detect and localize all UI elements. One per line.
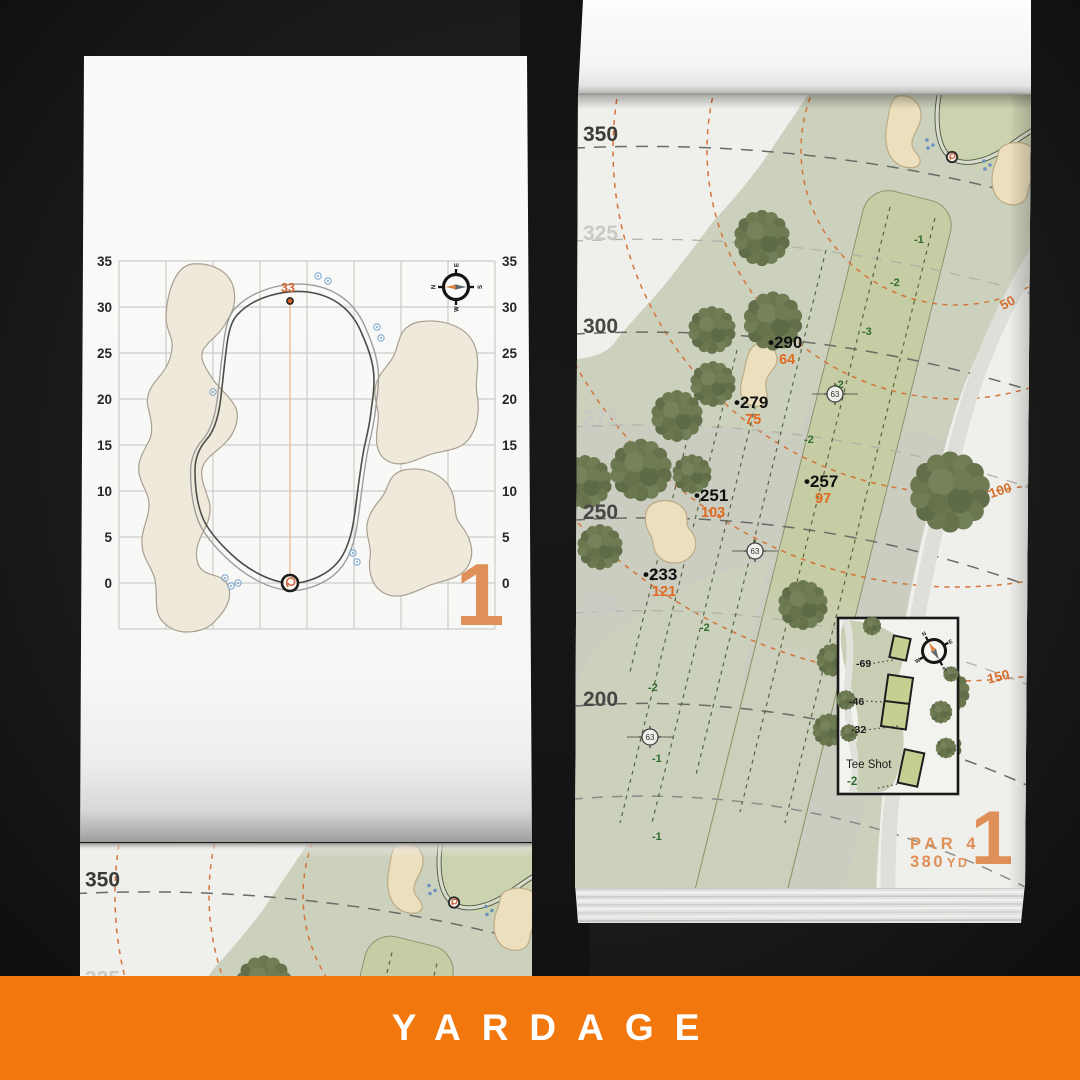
svg-text:YARDAGE: YARDAGE <box>392 1007 721 1048</box>
svg-text:S: S <box>478 285 484 289</box>
svg-text:20: 20 <box>97 392 112 407</box>
svg-text:35: 35 <box>97 254 113 269</box>
svg-text:30: 30 <box>502 300 517 315</box>
svg-text:25: 25 <box>502 346 518 361</box>
svg-text:E: E <box>455 263 461 267</box>
svg-text:30: 30 <box>97 300 112 315</box>
svg-text:10: 10 <box>502 484 517 499</box>
svg-text:1: 1 <box>456 545 505 644</box>
svg-text:33: 33 <box>281 281 295 295</box>
svg-text:5: 5 <box>104 530 112 545</box>
svg-text:0: 0 <box>104 576 112 591</box>
svg-text:W: W <box>455 306 461 312</box>
svg-text:5: 5 <box>502 530 510 545</box>
svg-text:15: 15 <box>502 438 518 453</box>
svg-text:10: 10 <box>97 484 112 499</box>
svg-text:15: 15 <box>97 438 113 453</box>
svg-text:25: 25 <box>97 346 113 361</box>
svg-text:35: 35 <box>502 254 518 269</box>
svg-text:N: N <box>432 285 438 289</box>
svg-text:20: 20 <box>502 392 517 407</box>
